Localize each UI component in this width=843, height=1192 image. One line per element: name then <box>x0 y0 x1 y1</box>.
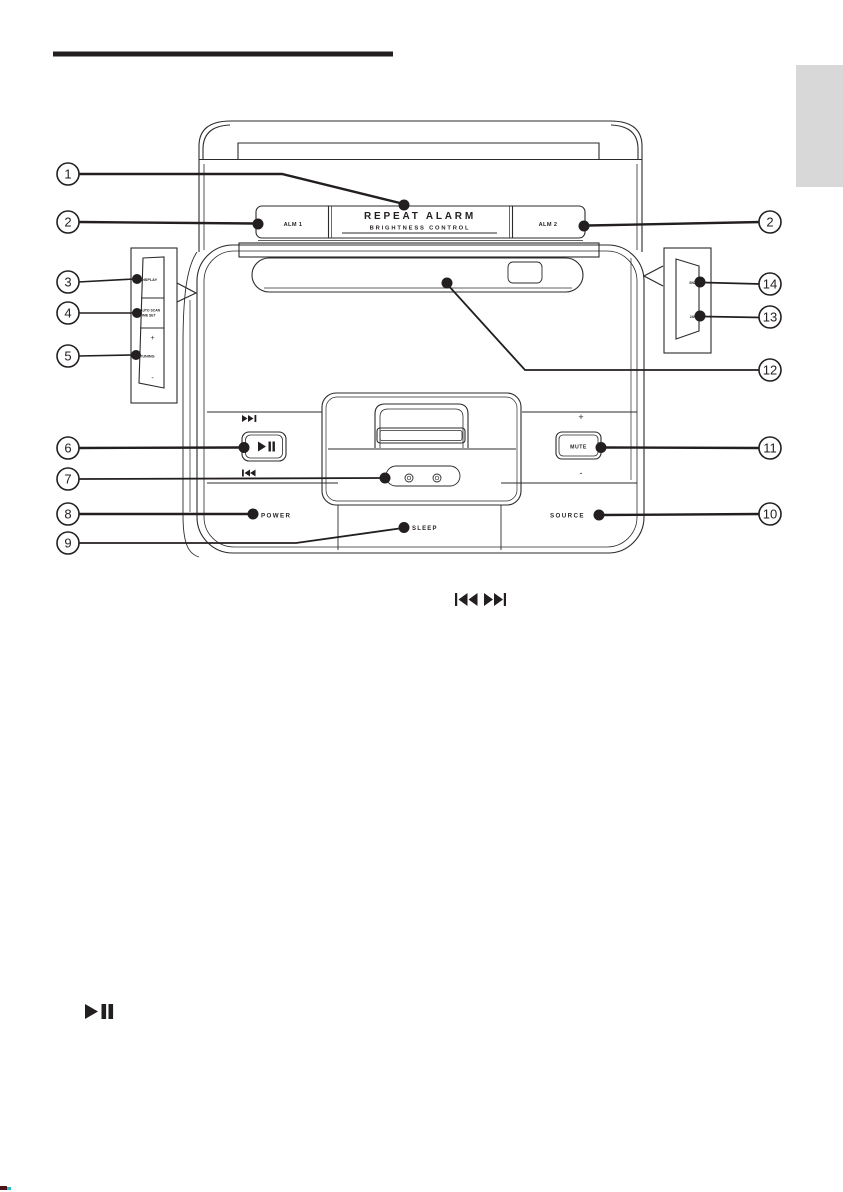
callout-3-number: 3 <box>64 275 71 290</box>
right-panel-face <box>676 259 699 339</box>
callout-3: 3 <box>57 271 79 293</box>
callout-dot-5 <box>131 350 141 360</box>
right-panel-housing <box>664 248 711 353</box>
callout-5: 5 <box>57 345 79 367</box>
callout-9-number: 9 <box>64 536 71 551</box>
callout-dot-14 <box>695 277 706 288</box>
callout-14-number: 14 <box>763 277 777 292</box>
callout-dot-2l <box>253 219 264 230</box>
dock-screw-left <box>405 474 413 482</box>
callout-1-number: 1 <box>64 167 71 182</box>
callout-13: 13 <box>759 306 781 328</box>
callout-8: 8 <box>57 503 79 525</box>
alm1-button-label: ALM 1 <box>284 222 303 228</box>
callout-line-10 <box>601 514 761 515</box>
callout-10-number: 10 <box>763 507 777 522</box>
right-panel-pointer <box>644 266 663 286</box>
callout-2l-number: 2 <box>64 215 71 230</box>
callout-6: 6 <box>57 437 79 459</box>
callout-10: 10 <box>759 503 781 525</box>
callout-14: 14 <box>759 273 781 295</box>
callout-12: 12 <box>759 359 781 381</box>
callout-line-2l <box>79 222 256 224</box>
display-slot <box>252 258 583 292</box>
play-pause-glyph <box>258 442 275 452</box>
tuning-plus-label: + <box>150 335 154 342</box>
callout-line-2r <box>588 222 761 226</box>
callout-dot-1 <box>399 200 410 211</box>
callout-13-number: 13 <box>763 310 777 325</box>
dock-screw-left-inner <box>407 476 411 480</box>
time-set-label: TIME SET <box>140 314 157 318</box>
language-tab <box>796 65 843 187</box>
volume-minus-label: - <box>580 468 583 478</box>
sleep-label: SLEEP <box>412 526 438 532</box>
callout-11: 11 <box>759 437 781 459</box>
top-control-bar: ALM 1 REPEAT ALARM BRIGHTNESS CONTROL AL… <box>256 206 585 241</box>
right-side-panel: SNZ 24H <box>644 248 711 353</box>
dock-connector-arch <box>375 404 468 448</box>
left-side-panel: DISPLAY AUTO SCAN TIME SET + TUNING - <box>131 248 196 403</box>
dock-plate <box>386 466 460 486</box>
auto-scan-label: AUTO SCAN <box>140 309 161 313</box>
callout-dot-11 <box>596 442 607 453</box>
volume-controls: + MUTE - <box>556 412 601 478</box>
callout-line-1 <box>79 174 404 204</box>
callout-line-14 <box>703 283 761 285</box>
callout-7-number: 7 <box>64 472 71 487</box>
callout-line-3 <box>78 279 134 282</box>
callout-line-7 <box>79 478 381 479</box>
previous-track-icon <box>242 470 256 477</box>
callout-dot-6 <box>239 442 250 453</box>
display-slot-tab <box>508 262 542 283</box>
callout-2r-number: 2 <box>766 215 773 230</box>
callout-dot-2r <box>579 221 590 232</box>
callout-4: 4 <box>57 302 79 324</box>
callout-dot-7 <box>380 473 391 484</box>
callout-2-left: 2 <box>57 211 79 233</box>
device-diagram: ALM 1 REPEAT ALARM BRIGHTNESS CONTROL AL… <box>131 121 711 557</box>
tuning-label: TUNING <box>140 355 155 359</box>
callout-line-5 <box>78 355 133 356</box>
callout-8-number: 8 <box>64 507 71 522</box>
left-panel-face <box>139 257 164 388</box>
callout-dot-12 <box>442 278 453 289</box>
callout-6-number: 6 <box>64 441 71 456</box>
front-face-inner <box>204 251 637 547</box>
volume-plus-label: + <box>578 412 583 422</box>
dock-connector-inner <box>380 431 462 441</box>
callout-dot-13 <box>695 311 706 322</box>
mute-label: MUTE <box>570 445 587 451</box>
callout-line-11 <box>603 448 761 449</box>
callout-9: 9 <box>57 532 79 554</box>
callout-4-number: 4 <box>64 306 71 321</box>
dock <box>322 393 521 505</box>
alm2-button-label: ALM 2 <box>539 222 558 228</box>
print-registration-mark <box>0 1186 11 1190</box>
dock-screw-right <box>433 474 441 482</box>
callout-dot-4 <box>132 308 142 318</box>
device-lid <box>199 121 642 160</box>
power-label: POWER <box>261 513 291 520</box>
callout-dot-8 <box>248 509 259 520</box>
brightness-control-label: BRIGHTNESS CONTROL <box>370 226 471 232</box>
callout-7: 7 <box>57 468 79 490</box>
callout-2-right: 2 <box>759 211 781 233</box>
callout-line-12 <box>447 284 760 370</box>
callout-5-number: 5 <box>64 349 71 364</box>
callout-line-9 <box>79 528 403 543</box>
left-panel-housing <box>131 248 177 403</box>
tuning-minus-label: - <box>151 375 154 382</box>
previous-next-track-icon <box>455 593 506 606</box>
next-track-icon <box>242 415 256 422</box>
repeat-alarm-label: REPEAT ALARM <box>364 211 476 222</box>
play-pause-icon <box>85 1004 113 1019</box>
source-label: SOURCE <box>550 513 585 520</box>
page-canvas: ALM 1 REPEAT ALARM BRIGHTNESS CONTROL AL… <box>0 0 843 1192</box>
display-button-label: DISPLAY <box>141 278 158 282</box>
callout-dot-3 <box>132 274 142 284</box>
dock-screw-right-inner <box>435 476 439 480</box>
inline-icons <box>85 593 506 1019</box>
bottom-row: POWER SLEEP SOURCE <box>261 513 585 533</box>
callout-12-number: 12 <box>763 363 777 378</box>
callout-line-6 <box>79 448 241 449</box>
callout-line-13 <box>703 317 761 318</box>
callout-1: 1 <box>57 163 79 185</box>
callout-dot-10 <box>594 510 605 521</box>
manual-page: ALM 1 REPEAT ALARM BRIGHTNESS CONTROL AL… <box>0 0 843 1192</box>
callout-11-number: 11 <box>763 441 777 456</box>
callout-dot-9 <box>399 522 410 533</box>
display-window <box>252 258 583 292</box>
